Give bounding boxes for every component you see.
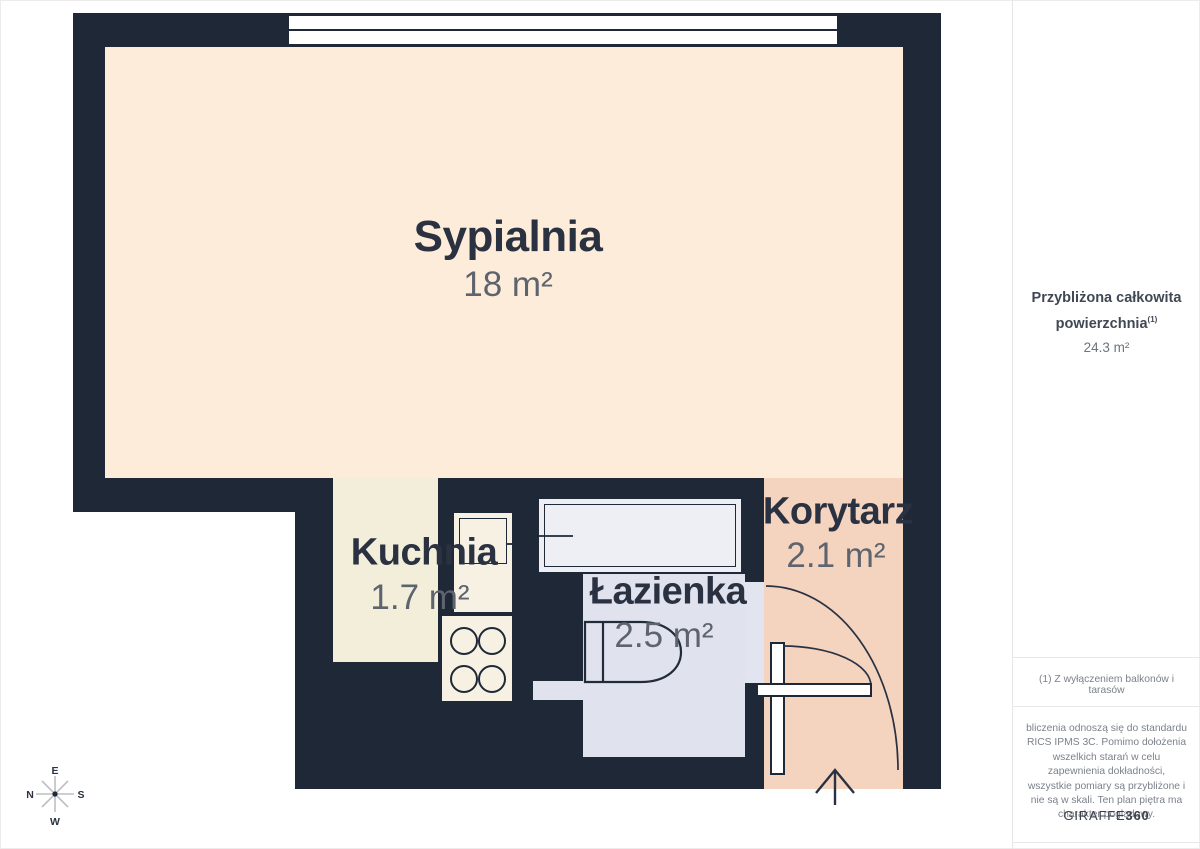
room-area-korytarz: 2.1 m²	[786, 536, 885, 576]
stove	[440, 614, 514, 703]
compass-letter-top: E	[51, 765, 58, 777]
total-area-value: 24.3 m²	[1013, 340, 1200, 355]
bathroom-niche	[533, 681, 583, 700]
room-label-korytarz: Korytarz	[763, 491, 913, 534]
room-area-kuchnia: 1.7 m²	[370, 578, 469, 618]
room-label-sypialnia: Sypialnia	[414, 212, 603, 262]
bedroom-floor	[105, 47, 903, 478]
sidebar: Przybliżona całkowita powierzchnia(1) 24…	[1012, 0, 1200, 849]
room-area-sypialnia: 18 m²	[463, 265, 552, 305]
footnote: (1) Z wyłączeniem balkonów i tarasów	[1021, 674, 1192, 696]
window-glazing-line	[289, 29, 837, 31]
total-area-label: Przybliżona całkowita powierzchnia(1)	[1013, 287, 1200, 335]
brand-bold: 360	[1125, 808, 1149, 823]
brand-regular: GIRAFFE	[1063, 808, 1125, 823]
compass: E N S W	[26, 765, 84, 828]
floor-plan-page: E N S W Sypialnia 18 m² Kuchnia 1.7 m² Ł…	[0, 0, 1200, 849]
wall-bottom-left-band	[73, 478, 333, 512]
compass-letter-bottom: W	[50, 816, 60, 828]
compass-letter-left: N	[26, 789, 34, 801]
wall-right	[903, 13, 941, 789]
compass-center-dot	[52, 791, 57, 796]
bathtub	[537, 497, 743, 574]
divider	[1013, 706, 1200, 707]
total-area-label-text: Przybliżona całkowita powierzchnia	[1032, 290, 1182, 332]
bathtub-inner	[544, 504, 736, 567]
window	[287, 14, 839, 46]
wall-left	[73, 13, 105, 512]
room-label-lazienka: Łazienka	[590, 571, 747, 614]
room-label-kuchnia: Kuchnia	[351, 532, 497, 575]
brand-logo: GIRAFFE360	[1013, 808, 1200, 823]
bathroom-doorway-patch	[745, 582, 764, 683]
compass-letter-right: S	[77, 789, 84, 801]
divider	[1013, 657, 1200, 658]
divider	[1013, 842, 1200, 843]
room-area-lazienka: 2.5 m²	[614, 616, 713, 656]
total-area-footnote-marker: (1)	[1148, 315, 1158, 324]
